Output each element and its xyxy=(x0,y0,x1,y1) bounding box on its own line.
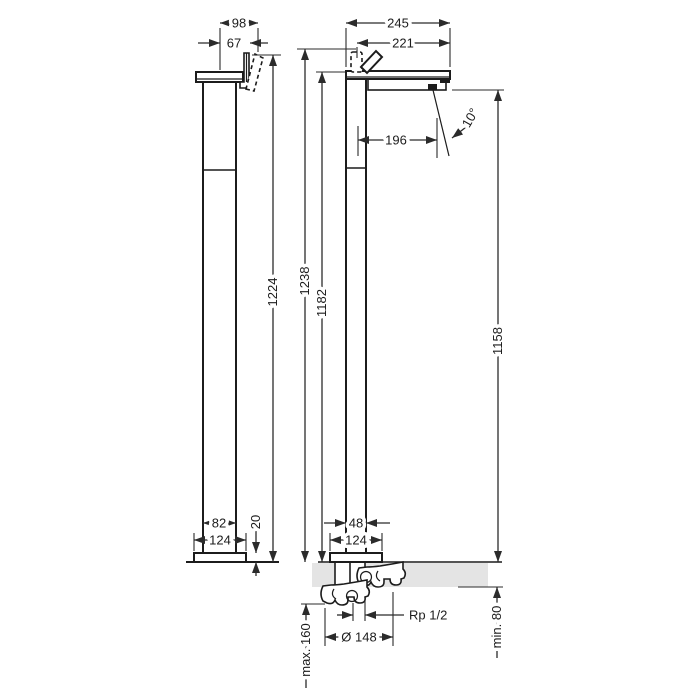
dim-label-124-front: 124 xyxy=(345,533,367,548)
technical-drawing: 98 67 1224 82 124 20 xyxy=(0,0,700,700)
front-column xyxy=(346,79,366,553)
dim-front-column-width: 48 xyxy=(324,516,390,531)
dim-front-height-spout-underside: 1158 xyxy=(452,90,505,562)
dim-connection-thread: Rp 1/2 xyxy=(337,600,447,623)
dim-side-height: 1224 xyxy=(252,55,281,562)
dim-label-rp12: Rp 1/2 xyxy=(409,608,447,623)
dim-label-10deg: 10° xyxy=(459,105,482,130)
side-base-plate xyxy=(194,553,246,562)
drawing-svg: 98 67 1224 82 124 20 xyxy=(0,0,700,700)
dim-label-245: 245 xyxy=(387,16,409,31)
dim-floor-min: min. 80 xyxy=(458,587,504,658)
spray-angle-line xyxy=(433,90,449,156)
dim-side-column-depth: 82 xyxy=(203,516,236,531)
dim-front-aerator-offset: 196 xyxy=(358,118,437,158)
front-handle-lever xyxy=(361,51,382,73)
dim-label-1182: 1182 xyxy=(314,289,329,317)
dim-front-height-spout-top: 1182 xyxy=(314,72,345,562)
dim-label-124-side: 124 xyxy=(209,533,231,548)
side-view xyxy=(186,53,279,562)
dim-label-48: 48 xyxy=(349,516,363,531)
dim-label-1238: 1238 xyxy=(297,267,312,296)
front-spout-plate xyxy=(346,71,450,79)
dim-label-min80: min. 80 xyxy=(489,606,504,649)
front-spout-tip-lip xyxy=(440,79,450,83)
dim-label-221: 221 xyxy=(392,36,414,51)
side-spout-cap xyxy=(196,72,243,82)
dim-spray-angle: 10° xyxy=(452,105,482,138)
dim-below-floor-max: max. 160 xyxy=(298,604,325,688)
dim-label-1224: 1224 xyxy=(265,278,280,307)
dim-label-1158: 1158 xyxy=(490,327,505,355)
dim-label-d148: Ø 148 xyxy=(341,630,376,645)
dim-side-base-depth: 124 xyxy=(194,533,246,552)
dim-front-base-width: 124 xyxy=(330,533,382,552)
dim-label-98: 98 xyxy=(232,16,246,31)
aerator xyxy=(428,84,437,90)
dim-front-handle-to-spout: 221 xyxy=(357,36,450,59)
side-column xyxy=(203,82,236,553)
dim-label-max160: max. 160 xyxy=(298,623,313,676)
dim-label-82: 82 xyxy=(212,516,226,531)
dim-label-196: 196 xyxy=(385,133,407,148)
front-view xyxy=(312,51,502,605)
dim-label-20: 20 xyxy=(248,515,263,529)
dim-side-base-height: 20 xyxy=(248,515,263,576)
dim-label-67: 67 xyxy=(227,36,241,51)
front-base-plate xyxy=(330,553,382,562)
